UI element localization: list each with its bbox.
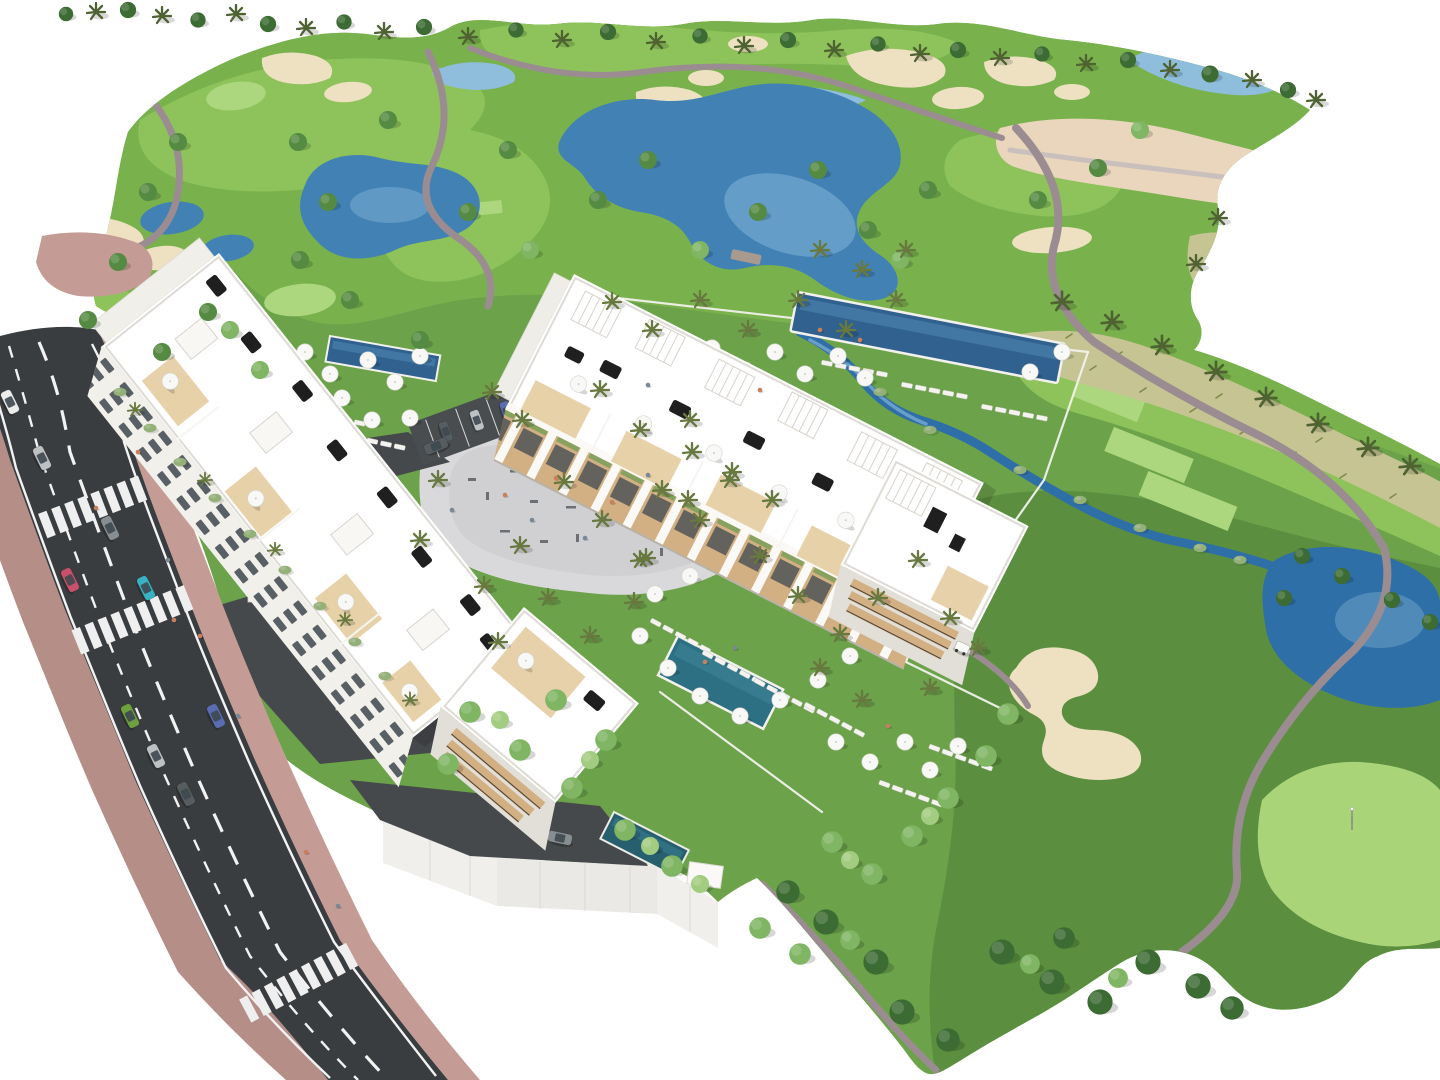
tree-icon xyxy=(789,943,815,965)
tree-icon xyxy=(1185,973,1216,998)
bunker xyxy=(688,70,724,86)
tree-icon xyxy=(336,14,355,29)
tree-icon xyxy=(190,12,209,27)
lake-highlight xyxy=(350,187,430,223)
bunker xyxy=(1054,84,1090,100)
tree-icon xyxy=(416,19,436,35)
lake xyxy=(1395,92,1440,205)
tree-icon xyxy=(1280,82,1300,98)
tree-icon xyxy=(1108,968,1132,988)
tree-icon xyxy=(1135,949,1166,974)
tee-box xyxy=(19,201,78,230)
tree-icon xyxy=(260,16,280,32)
tree-icon xyxy=(1087,989,1118,1014)
palm-icon xyxy=(297,19,319,35)
palm-icon xyxy=(1307,91,1329,107)
tree-icon xyxy=(59,7,77,21)
tree-icon xyxy=(120,2,140,18)
masterplan-render xyxy=(0,0,1440,1080)
render-canvas xyxy=(0,0,1440,1080)
tree-icon xyxy=(1220,996,1249,1019)
palm-icon xyxy=(227,5,249,21)
tree-icon xyxy=(749,917,775,939)
palm-icon xyxy=(87,3,109,19)
palm-icon xyxy=(153,7,175,23)
wall-face xyxy=(497,858,657,914)
